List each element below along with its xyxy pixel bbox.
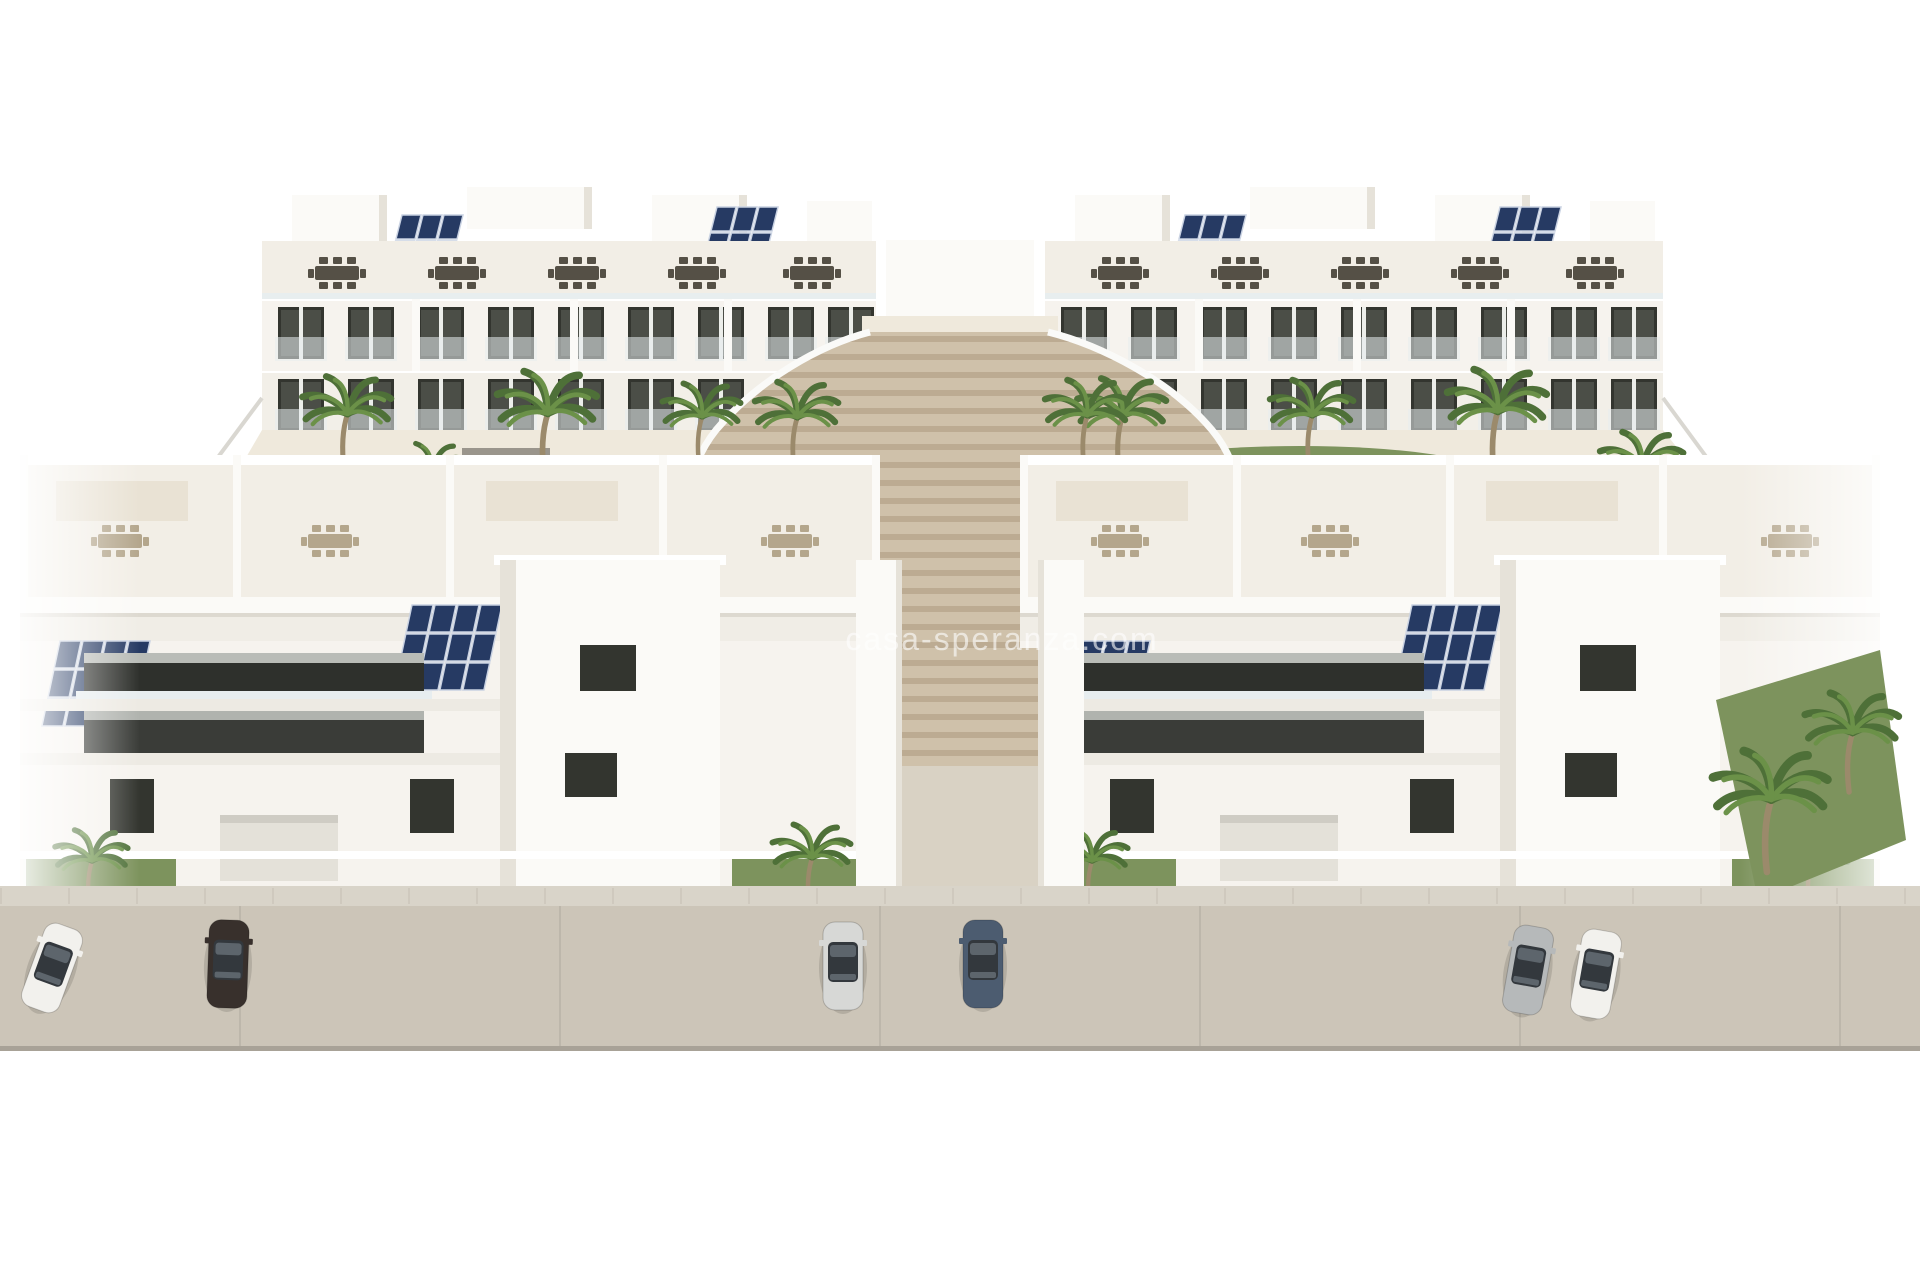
render-canvas: casa-speranza.com — [0, 0, 1920, 1280]
road-edge — [0, 1046, 1920, 1051]
front-building-left — [20, 455, 880, 907]
parked-car-blue-centre — [959, 920, 1007, 1012]
parked-car-dark-left — [202, 919, 253, 1013]
architectural-render-page: casa-speranza.com — [0, 0, 1920, 1280]
watermark-text: casa-speranza.com — [845, 621, 1158, 657]
street — [0, 886, 1920, 1051]
parked-car-silver-centre — [819, 922, 867, 1014]
left-fade — [0, 380, 140, 900]
